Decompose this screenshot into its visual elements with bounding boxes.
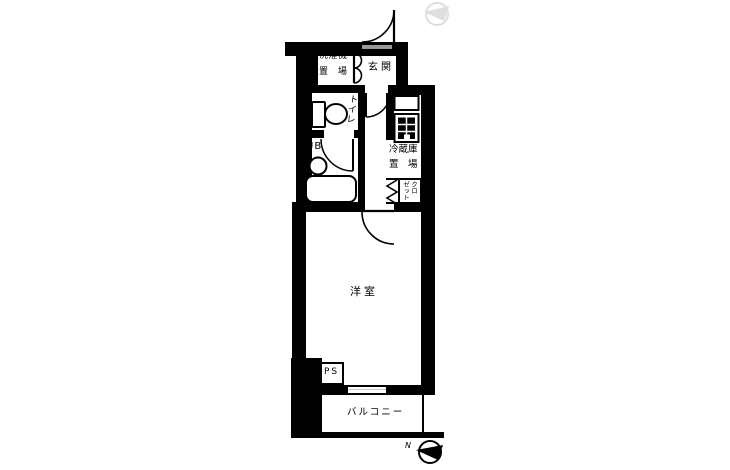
balcony-label: バルコニー	[347, 408, 404, 418]
bath-label: UB	[306, 141, 322, 152]
room-door-icon	[362, 211, 394, 244]
toilet-fixture-icon	[312, 102, 347, 127]
fridge-label-line1: 冷蔵庫	[389, 145, 418, 155]
bath-basin-icon	[310, 158, 327, 175]
kitchen-sink-icon	[395, 96, 419, 110]
entrance-door-icon	[362, 10, 394, 42]
washer-bifold-door-icon	[354, 53, 362, 83]
compass-icon	[416, 441, 443, 463]
toilet-door-icon	[366, 93, 390, 117]
compass-north-label: N	[405, 442, 411, 451]
closet-label-col1: クロ	[410, 181, 417, 194]
washer-room-label-line1: 洗濯機	[319, 52, 348, 62]
fridge-label-line2: 置 場	[389, 160, 418, 170]
closet-accordion-door-icon	[387, 180, 397, 204]
bathtub-icon	[306, 176, 356, 202]
pipe-space-label: PS	[324, 368, 339, 378]
gas-stove-icon	[395, 114, 419, 142]
entrance-label: 玄関	[368, 62, 394, 73]
ghost-compass-icon	[424, 3, 449, 25]
floor-plan-canvas: 洗濯機 置 場 玄関 トイレ UB 冷蔵庫 置 場 クロ ゼット 洋室 PS バ…	[0, 0, 730, 470]
symbol-layer	[0, 0, 730, 470]
main-room-label: 洋室	[350, 286, 378, 298]
closet-label-col2: ゼット	[402, 181, 409, 201]
washer-room-label-line2: 置 場	[319, 68, 348, 78]
